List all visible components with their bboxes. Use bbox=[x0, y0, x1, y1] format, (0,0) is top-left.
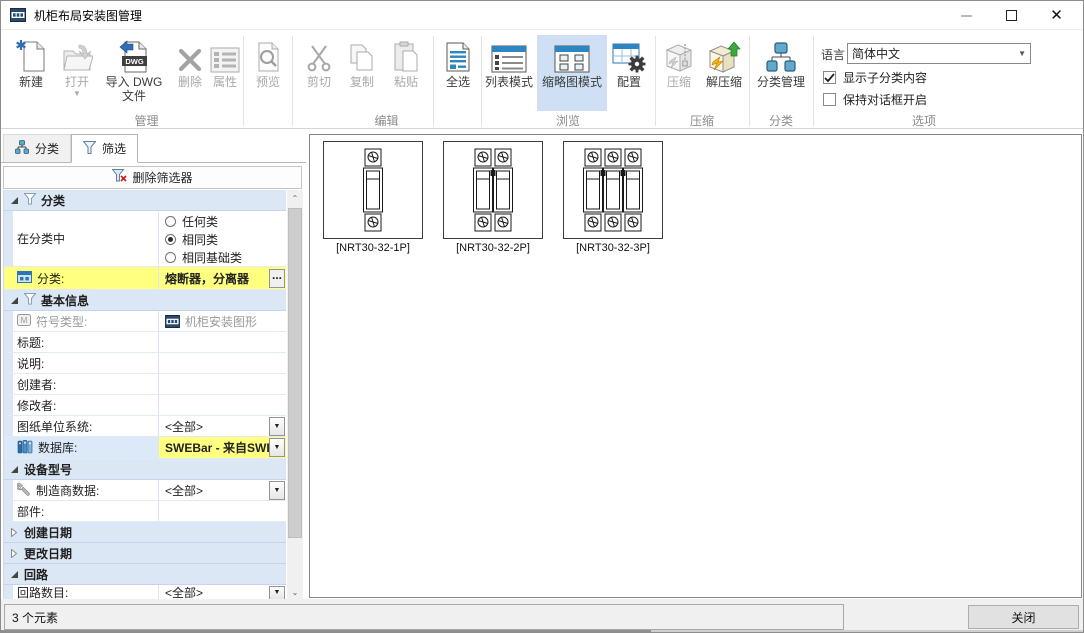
units-row: 图纸单位系统: <全部> ▼ bbox=[4, 416, 286, 437]
category-card-icon bbox=[17, 271, 32, 286]
org-chart-icon bbox=[765, 35, 797, 75]
funnel-icon bbox=[24, 293, 36, 308]
statusbar: 3 个元素 关闭 bbox=[1, 599, 1083, 633]
tab-category[interactable]: 分类 bbox=[3, 134, 71, 162]
symbol-type-icon: M bbox=[17, 314, 31, 329]
collapse-expanded-icon bbox=[9, 571, 19, 578]
creator-row: 创建者: bbox=[4, 374, 286, 395]
collapse-expanded-icon bbox=[9, 466, 19, 473]
symbol-type-value: 机柜安装图形 bbox=[185, 313, 286, 330]
manufacturer-select[interactable]: <全部> ▼ bbox=[159, 480, 286, 500]
open-dropdown-caret-icon: ▼ bbox=[73, 90, 81, 98]
element-count: 3 个元素 bbox=[12, 609, 58, 626]
database-value: SWEBar - 来自SWE bbox=[165, 439, 269, 456]
radio-any-class[interactable]: 任何类 bbox=[165, 214, 218, 229]
new-button[interactable]: 新建 bbox=[9, 35, 53, 111]
open-button[interactable]: 打开 ▼ bbox=[55, 35, 99, 111]
title-label: 标题: bbox=[13, 332, 159, 352]
circuit-count-label: 回路数目: bbox=[13, 585, 159, 600]
funnel-icon bbox=[24, 193, 36, 208]
circuit-count-value: <全部> bbox=[165, 585, 269, 600]
symbol-type-value-cell: 机柜安装图形 bbox=[159, 311, 286, 331]
thumbnail-item[interactable]: [NRT30-32-3P] bbox=[563, 141, 663, 254]
scissors-icon bbox=[304, 35, 334, 75]
category-filter-row: 分类: 熔断器，分离器 ... bbox=[4, 267, 286, 290]
ribbon-toolbar: 新建 打开 ▼ DWG 导入 DWG 文件 删除 属性 bbox=[1, 31, 1083, 129]
description-label: 说明: bbox=[13, 353, 159, 373]
preview-button[interactable]: 预览 bbox=[247, 35, 289, 111]
section-header-created-date[interactable]: 创建日期 bbox=[4, 522, 286, 543]
manufacturer-row: 制造商数据: <全部> ▼ bbox=[4, 480, 286, 501]
select-all-doc-icon bbox=[445, 35, 471, 75]
titlebar: 机柜布局安装图管理 ✕ bbox=[1, 1, 1083, 30]
language-value: 简体中文 bbox=[852, 45, 1018, 62]
part-input[interactable] bbox=[159, 501, 286, 521]
symbol-type-label: M 符号类型: bbox=[13, 311, 159, 331]
close-icon: ✕ bbox=[1050, 8, 1063, 23]
copy-button[interactable]: 复制 bbox=[341, 35, 383, 111]
chevron-down-icon[interactable]: ▼ bbox=[269, 417, 285, 436]
svg-text:DWG: DWG bbox=[125, 57, 143, 66]
fuse-holder-drawing[interactable] bbox=[443, 141, 543, 239]
list-mode-icon bbox=[491, 35, 527, 75]
category-tree-icon bbox=[15, 140, 29, 157]
modifier-input[interactable] bbox=[159, 395, 286, 415]
new-file-icon bbox=[16, 35, 46, 75]
show-subcategory-checkbox-row[interactable]: 显示子分类内容 bbox=[823, 69, 927, 86]
creator-label: 创建者: bbox=[13, 374, 159, 394]
thumbnail-item[interactable]: [NRT30-32-1P] bbox=[323, 141, 423, 254]
app-film-icon bbox=[10, 8, 26, 22]
group-label-edit: 编辑 bbox=[292, 112, 481, 128]
collapse-expanded-icon bbox=[9, 297, 19, 304]
thumbnail-item[interactable]: [NRT30-32-2P] bbox=[443, 141, 543, 254]
fuse-holder-drawing[interactable] bbox=[323, 141, 423, 239]
section-header-modified-date[interactable]: 更改日期 bbox=[4, 543, 286, 564]
chevron-down-icon[interactable]: ▼ bbox=[269, 438, 285, 457]
thumbnail-label: [NRT30-32-2P] bbox=[443, 242, 543, 254]
import-dwg-icon: DWG bbox=[117, 35, 151, 75]
group-label-category: 分类 bbox=[749, 112, 813, 128]
radio-same-base-class[interactable]: 相同基础类 bbox=[165, 250, 242, 265]
radio-same-class[interactable]: 相同类 bbox=[165, 232, 218, 247]
thumbnail-list: [NRT30-32-1P][NRT30-32-2P][NRT30-32-3P] bbox=[309, 134, 1082, 598]
maximize-icon bbox=[1006, 10, 1017, 21]
cut-button[interactable]: 剪切 bbox=[299, 35, 339, 111]
modifier-label: 修改者: bbox=[13, 395, 159, 415]
modifier-row: 修改者: bbox=[4, 395, 286, 416]
section-header-basic-info[interactable]: 基本信息 bbox=[4, 290, 286, 311]
thumbnail-mode-button[interactable]: 缩略图模式 bbox=[537, 35, 607, 111]
tab-filter-label: 筛选 bbox=[102, 140, 126, 157]
database-label: 数据库: bbox=[13, 437, 159, 458]
compress-zip-icon bbox=[663, 35, 695, 75]
thumbnail-label: [NRT30-32-1P] bbox=[323, 242, 423, 254]
section-header-circuit[interactable]: 回路 bbox=[4, 564, 286, 585]
scrollbar-thumb[interactable] bbox=[288, 208, 302, 538]
in-category-label: 在分类中 bbox=[13, 211, 159, 266]
part-row: 部件: bbox=[4, 501, 286, 522]
maximize-button[interactable] bbox=[989, 1, 1034, 30]
group-label-compress: 压缩 bbox=[655, 112, 749, 128]
sidebar-tabbar: 分类 筛选 bbox=[1, 133, 306, 163]
manufacturer-value: <全部> bbox=[165, 482, 269, 499]
import-dwg-button[interactable]: DWG 导入 DWG 文件 bbox=[99, 35, 169, 111]
chevron-down-icon: ▼ bbox=[1018, 49, 1026, 58]
language-select[interactable]: 简体中文 ▼ bbox=[847, 43, 1031, 64]
description-row: 说明: bbox=[4, 353, 286, 374]
language-label: 语言 bbox=[821, 46, 845, 63]
paste-clipboard-icon bbox=[393, 35, 419, 75]
manufacturer-label: 制造商数据: bbox=[13, 480, 159, 500]
category-more-button[interactable]: ... bbox=[269, 269, 285, 288]
delete-x-icon bbox=[177, 35, 203, 75]
dialog-window: 机柜布局安装图管理 ✕ 新建 打开 ▼ DWG 导入 DWG 文件 bbox=[0, 0, 1084, 633]
compress-button[interactable]: 压缩 bbox=[659, 35, 699, 111]
chevron-down-icon[interactable]: ▼ bbox=[269, 586, 285, 600]
section-header-category[interactable]: 分类 bbox=[4, 190, 286, 211]
properties-button[interactable]: 属性 bbox=[207, 35, 243, 111]
category-manage-button[interactable]: 分类管理 bbox=[751, 35, 811, 111]
funnel-icon bbox=[83, 141, 96, 157]
configure-button[interactable]: 配置 bbox=[607, 35, 651, 111]
element-count-box: 3 个元素 bbox=[4, 604, 844, 630]
delete-filter-label: 删除筛选器 bbox=[132, 169, 192, 186]
thumbnail-label: [NRT30-32-3P] bbox=[563, 242, 663, 254]
show-subcategory-label: 显示子分类内容 bbox=[843, 69, 927, 86]
database-books-icon bbox=[17, 439, 33, 457]
decompress-unzip-icon bbox=[707, 35, 741, 75]
radio-icon bbox=[165, 252, 176, 263]
keep-dialog-open-checkbox-row[interactable]: 保持对话框开启 bbox=[823, 91, 927, 108]
title-input[interactable] bbox=[159, 332, 286, 352]
checkbox-checked-icon[interactable] bbox=[823, 71, 836, 84]
configure-gear-icon bbox=[612, 35, 646, 75]
open-folder-icon bbox=[61, 35, 93, 75]
group-label-options: 选项 bbox=[813, 112, 1035, 128]
database-row: 数据库: SWEBar - 来自SWE ▼ bbox=[4, 437, 286, 459]
units-select[interactable]: <全部> ▼ bbox=[159, 416, 286, 436]
delete-filter-button[interactable]: 删除筛选器 bbox=[3, 166, 302, 189]
paste-button[interactable]: 粘贴 bbox=[385, 35, 427, 111]
dialog-close-button[interactable]: 关闭 bbox=[968, 605, 1079, 629]
category-filter-value: 熔断器，分离器 bbox=[165, 270, 269, 287]
svg-text:M: M bbox=[21, 316, 28, 325]
wrench-icon bbox=[17, 482, 31, 499]
symbol-type-row: M 符号类型: 机柜安装图形 bbox=[4, 311, 286, 332]
in-category-row: 在分类中 任何类 相同类 相同基础类 bbox=[4, 211, 286, 267]
radio-selected-icon bbox=[165, 234, 176, 245]
properties-list-icon bbox=[210, 35, 240, 75]
units-label: 图纸单位系统: bbox=[13, 416, 159, 436]
circuit-count-select[interactable]: <全部> ▼ bbox=[159, 585, 286, 600]
thumbnail-mode-icon bbox=[554, 35, 590, 75]
chevron-down-icon[interactable]: ▼ bbox=[269, 481, 285, 500]
collapse-expanded-icon bbox=[9, 197, 19, 204]
film-icon bbox=[165, 315, 180, 328]
minimize-button[interactable] bbox=[944, 1, 989, 30]
radio-icon bbox=[165, 216, 176, 227]
scroll-up-arrow[interactable]: ⌃ bbox=[287, 190, 303, 207]
creator-input[interactable] bbox=[159, 374, 286, 394]
description-input[interactable] bbox=[159, 353, 286, 373]
tab-filter[interactable]: 筛选 bbox=[71, 134, 138, 163]
copy-pages-icon bbox=[348, 35, 376, 75]
tab-category-label: 分类 bbox=[35, 140, 59, 157]
collapse-collapsed-icon bbox=[9, 549, 19, 558]
title-row: 标题: bbox=[4, 332, 286, 353]
minimize-icon bbox=[961, 15, 972, 17]
keep-dialog-open-label: 保持对话框开启 bbox=[843, 91, 927, 108]
delete-filter-icon bbox=[112, 169, 127, 186]
delete-button[interactable]: 删除 bbox=[171, 35, 209, 111]
select-all-button[interactable]: 全选 bbox=[437, 35, 479, 111]
section-header-device-model[interactable]: 设备型号 bbox=[4, 459, 286, 480]
close-button[interactable]: ✕ bbox=[1034, 1, 1079, 30]
database-select[interactable]: SWEBar - 来自SWE ▼ bbox=[159, 437, 286, 458]
group-label-browse: 浏览 bbox=[481, 112, 655, 128]
in-category-radio-group: 任何类 相同类 相同基础类 bbox=[159, 211, 286, 266]
group-label-manage: 管理 bbox=[1, 112, 292, 128]
preview-magnifier-icon bbox=[254, 35, 282, 75]
window-title: 机柜布局安装图管理 bbox=[34, 7, 142, 24]
sidebar-scrollbar[interactable]: ⌃ ⌄ bbox=[287, 190, 303, 601]
fuse-holder-drawing[interactable] bbox=[563, 141, 663, 239]
collapse-collapsed-icon bbox=[9, 528, 19, 537]
category-filter-value-cell[interactable]: 熔断器，分离器 ... bbox=[159, 267, 286, 289]
category-filter-label: 分类: bbox=[13, 267, 159, 289]
filter-sidebar: 分类 筛选 删除筛选器 分类 在分类中 任何类 相 bbox=[1, 130, 306, 601]
units-value: <全部> bbox=[165, 418, 269, 435]
list-mode-button[interactable]: 列表模式 bbox=[483, 35, 535, 111]
part-label: 部件: bbox=[13, 501, 159, 521]
checkbox-unchecked-icon[interactable] bbox=[823, 93, 836, 106]
filter-grid: 分类 在分类中 任何类 相同类 相同基础类 分类: 熔断器，分离器 bbox=[3, 190, 286, 601]
decompress-button[interactable]: 解压缩 bbox=[701, 35, 747, 111]
